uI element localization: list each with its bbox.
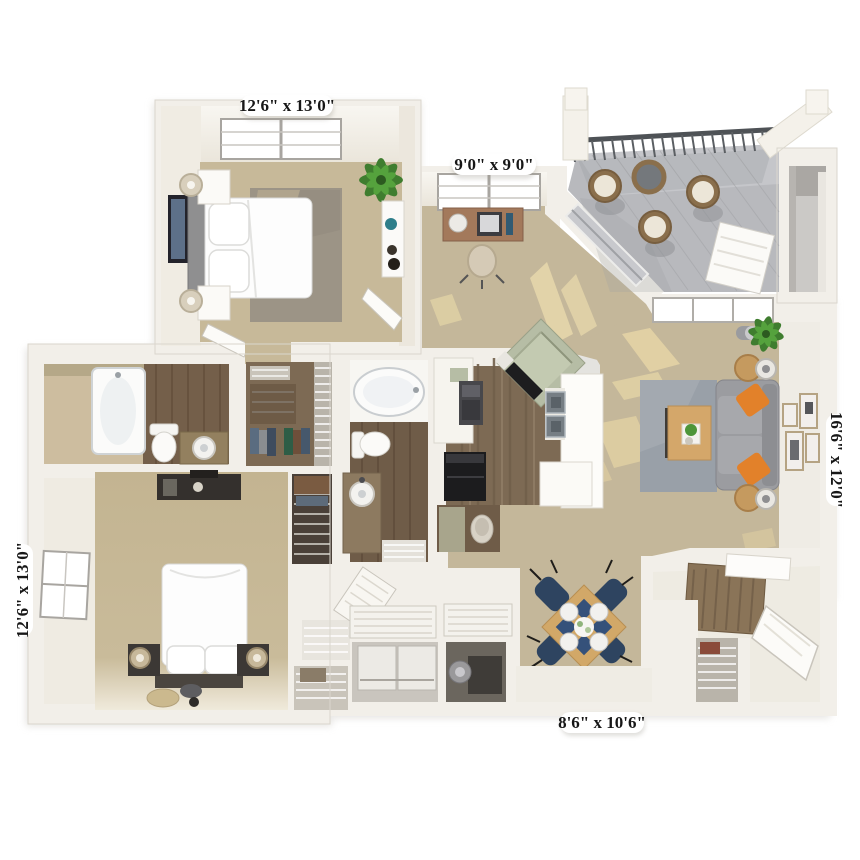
svg-text:8'6" x 10'6": 8'6" x 10'6": [558, 713, 646, 732]
svg-text:12'6" x 13'0": 12'6" x 13'0": [239, 96, 335, 115]
svg-text:12'6" x 13'0": 12'6" x 13'0": [13, 542, 32, 638]
svg-text:16'6" x 12'0": 16'6" x 12'0": [827, 412, 846, 508]
svg-text:9'0" x 9'0": 9'0" x 9'0": [454, 155, 533, 174]
